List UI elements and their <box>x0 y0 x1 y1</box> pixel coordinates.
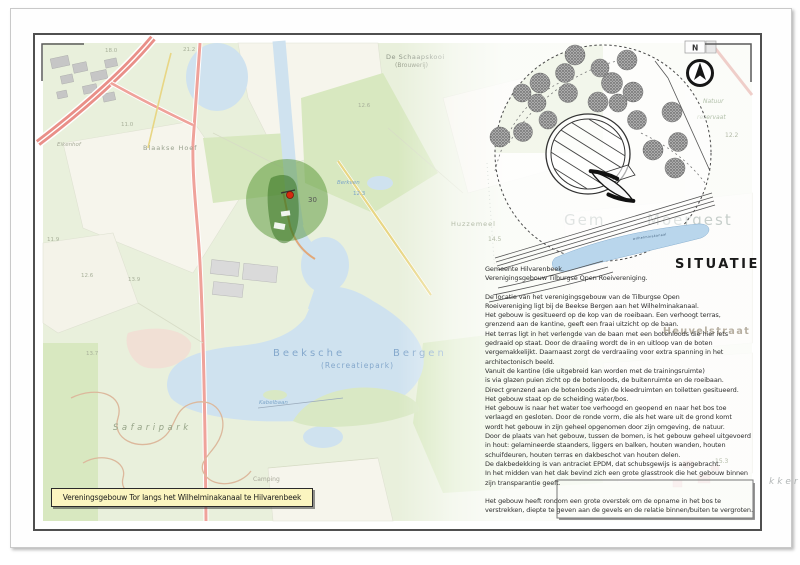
text-line: Roeivereniging ligt bij de Beekse Bergen… <box>485 302 770 311</box>
text-line: architectonisch beeld. <box>485 358 770 367</box>
text-line: Direct grenzend aan de botenloods zijn d… <box>485 386 770 395</box>
faded-road-top-right <box>715 48 752 95</box>
text-line: Het gebouw is naar het water toe verhoog… <box>485 404 770 413</box>
margin-bleed-text: kker <box>769 477 800 487</box>
label-elev-14-5: 14.5 <box>488 236 502 243</box>
text-line: Het gebouw staat op de scheiding water/b… <box>485 395 770 404</box>
text-body: De locatie van het verenigingsgebouw van… <box>485 293 770 516</box>
description-text-block: Gemeente Hilvarenbeek. Verenigingsgebouw… <box>485 265 770 516</box>
text-line: De locatie van het verenigingsgebouw van… <box>485 293 770 302</box>
text-line: Het terras ligt in het verlengde van de … <box>485 330 770 339</box>
text-heading-1: Gemeente Hilvarenbeek. <box>485 265 770 274</box>
compass-n-label: N <box>692 44 698 53</box>
north-arrow-compass: N <box>685 41 716 86</box>
text-line: zijn transparantie geeft. <box>485 479 770 488</box>
text-line: De dakbedekking is van antraciet EPDM, d… <box>485 460 770 469</box>
text-line: Vanuit de kantine (die uitgebreid kan wo… <box>485 367 770 376</box>
label-elev-12-2: 12.2 <box>725 132 739 139</box>
text-line: verstrekken, diepte te geven aan de geve… <box>485 506 770 515</box>
text-line: vergemakkelijkt. Daarnaast zorgt de verd… <box>485 348 770 357</box>
drawing-sheet: De Schaapskooi (Brouwerij) 18.0 21.2 11.… <box>10 8 792 548</box>
title-box: Vereningsgebouw Tor langs het Wilhelmina… <box>51 488 313 507</box>
drawing-frame: De Schaapskooi (Brouwerij) 18.0 21.2 11.… <box>33 33 762 531</box>
text-line: in hout: gelamineerde staanders, liggers… <box>485 441 770 450</box>
text-line: Door de plaats van het gebouw, tussen de… <box>485 432 770 441</box>
label-natuur: Natuur <box>703 98 724 105</box>
text-heading-2: Verenigingsgebouw Tilburgse Open Roeiver… <box>485 274 770 283</box>
text-line: wordt het gebouw in zijn geheel opgenome… <box>485 423 770 432</box>
text-line: gedraaid op staat. Door de draaiing word… <box>485 339 770 348</box>
text-line: schuifdeuren, houten terras en dakbescho… <box>485 451 770 460</box>
text-line: is via glazen puien zicht op de botenloo… <box>485 376 770 385</box>
text-line <box>485 488 770 497</box>
text-line: grenzend aan de kantine, geeft een fraai… <box>485 320 770 329</box>
text-line: Het gebouw heeft rondom een grote overst… <box>485 497 770 506</box>
text-line: Het gebouw is gesitueerd op de kop van d… <box>485 311 770 320</box>
text-line: In het midden van het dak bevind zich ee… <box>485 469 770 478</box>
text-line: verlaagd en gesloten. Door de ronde vorm… <box>485 413 770 422</box>
label-huzzemeel: Huzzemeel <box>451 220 496 228</box>
